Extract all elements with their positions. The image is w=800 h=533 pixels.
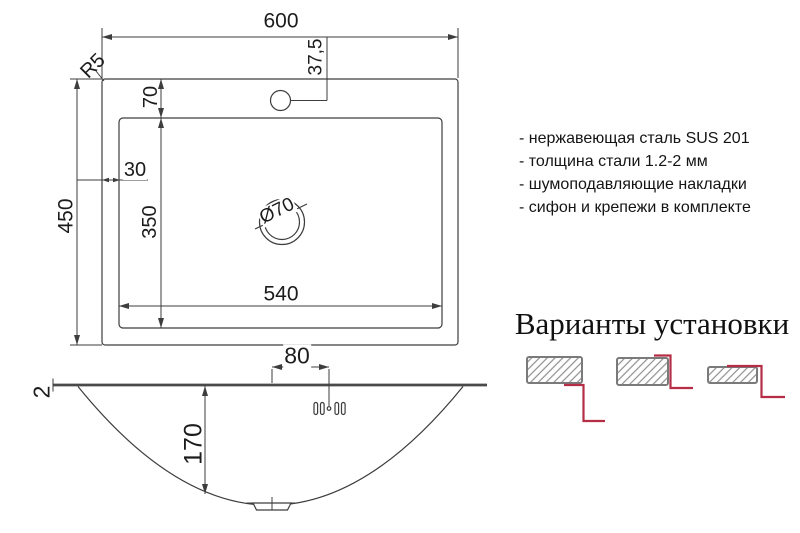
countertop-section-icon (708, 367, 757, 383)
top-mount-diagram (708, 366, 785, 397)
sink-rim-profile (564, 385, 605, 421)
spec-item-sound-pads: - шумоподавляющие накладки (519, 173, 751, 196)
spec-item-included: - сифон и крепежи в комплекте (519, 196, 751, 219)
installation-diagrams (527, 356, 785, 422)
pilot-hole (327, 407, 331, 411)
dim-label-30: 30 (123, 160, 147, 180)
sink-technical-drawing: 600 450 R5 37,5 70 30 350 540 Ø70 80 2 1… (0, 0, 800, 533)
spec-item-material: - нержавеющая сталь SUS 201 (519, 127, 751, 150)
mounting-slot (321, 403, 325, 415)
dim-label-350: 350 (140, 205, 160, 238)
dim-label-2: 2 (31, 386, 54, 399)
spec-item-thickness: - толщина стали 1.2-2 мм (519, 150, 751, 173)
side-view (53, 367, 487, 510)
dim-label-70: 70 (141, 86, 161, 108)
mounting-slot (314, 403, 318, 415)
drawing-canvas (0, 0, 800, 533)
spec-list: - нержавеющая сталь SUS 201 - толщина ст… (519, 127, 751, 219)
flush-mount-diagram (617, 356, 693, 389)
countertop-section-icon (527, 357, 582, 383)
dim-label-37-5: 37,5 (307, 39, 326, 76)
bowl-profile-arc (78, 387, 463, 506)
dim-label-540: 540 (262, 284, 299, 305)
dim-label-450: 450 (56, 198, 77, 233)
installation-title: Варианты установки (515, 306, 789, 342)
mounting-slot (342, 403, 346, 415)
dim-label-170: 170 (182, 423, 207, 465)
dim-label-600: 600 (263, 11, 298, 32)
undermount-diagram (527, 357, 605, 421)
faucet-hole (271, 91, 291, 111)
mounting-slot (335, 403, 339, 415)
dim-label-80: 80 (283, 345, 311, 368)
arrowhead (102, 178, 109, 182)
countertop-section-icon (617, 358, 668, 385)
